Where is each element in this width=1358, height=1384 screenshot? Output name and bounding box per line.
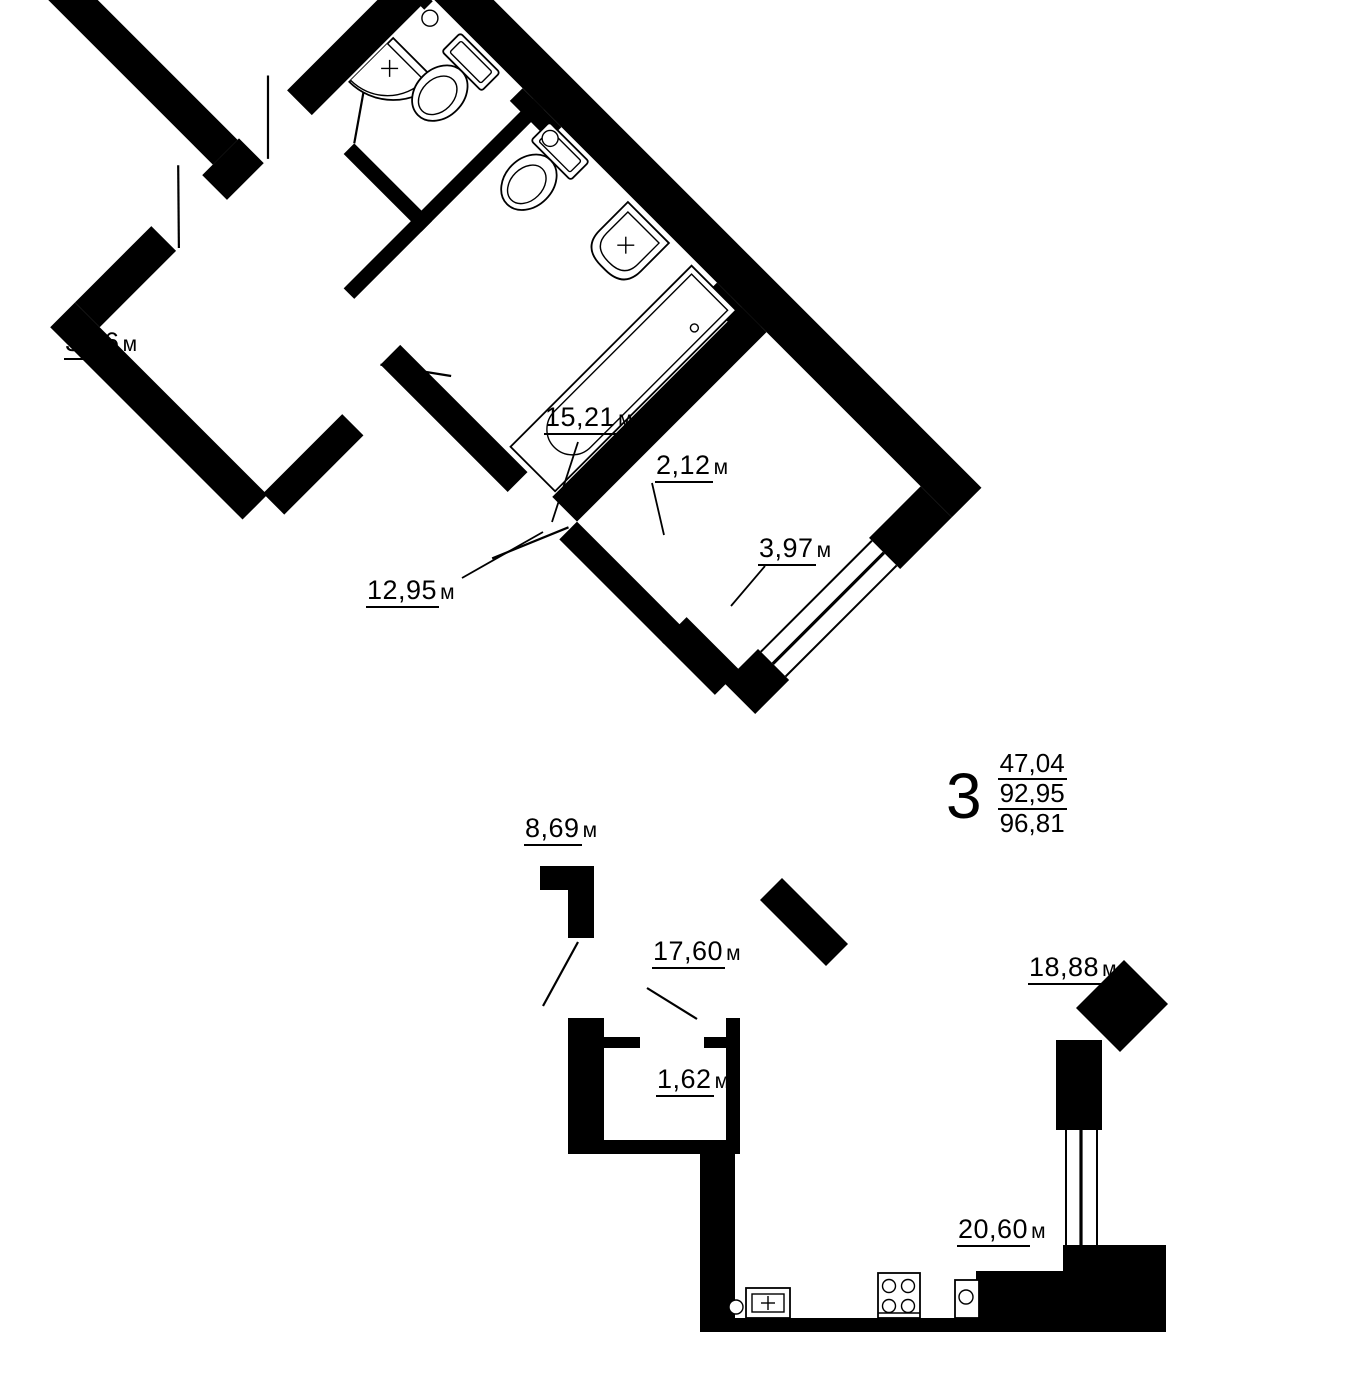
- living-area: 47,04: [998, 750, 1067, 780]
- wall-kitchen-corner: [1063, 1245, 1166, 1275]
- walls-group: [0, 0, 981, 885]
- wall-living-bottom: [559, 522, 681, 644]
- wall-kitchen-right-top: [1056, 1040, 1102, 1130]
- window-living-room: [786, 566, 897, 677]
- area-stack: 47,04 92,95 96,81: [998, 750, 1067, 838]
- room-label-hallway: 8,69м: [524, 813, 598, 844]
- pipe-icon: [419, 7, 442, 30]
- stove-icon: [878, 1273, 920, 1318]
- rooms-count: 3: [946, 764, 982, 828]
- room-label-bedroom-2: 12,95м: [366, 575, 455, 606]
- kitchen-fixtures-group: [729, 1273, 979, 1318]
- room-label-storage: 1,62м: [656, 1064, 730, 1095]
- windows-group: [1066, 1128, 1097, 1245]
- room-label-corridor: 17,60м: [652, 936, 741, 967]
- wall-storage-top: [704, 1037, 726, 1048]
- total-area: 96,81: [998, 810, 1067, 838]
- room-label-living-room: 18,88м: [1028, 952, 1117, 983]
- wall-storage-left: [568, 1018, 604, 1154]
- room-label-bathroom: 3,97м: [758, 533, 832, 564]
- oven-icon: [955, 1280, 979, 1318]
- door-storage-leaf: [647, 988, 697, 1019]
- wall-storage-top: [604, 1037, 640, 1048]
- wall-entry-pier: [568, 866, 594, 938]
- room-label-balcony: 3,86м: [64, 327, 138, 358]
- floor-plan-drawing: [0, 0, 1358, 1384]
- leader-bedroom-2: [462, 532, 543, 578]
- walls-group: [540, 866, 1168, 1332]
- door-entry-leaf: [543, 942, 578, 1006]
- window-living-room: [773, 553, 884, 664]
- kitchen-sink-icon: [729, 1288, 790, 1318]
- wall-kitchen-entry-stub: [760, 878, 848, 966]
- room-label-kitchen: 20,60м: [957, 1214, 1046, 1245]
- wall-bath-bottom: [380, 345, 527, 492]
- rotated-section: [0, 0, 981, 885]
- orthogonal-section: [540, 866, 1168, 1332]
- floor-plan: 3,86м 15,21м 2,12м 3,97м 12,95м 8,69м 17…: [0, 0, 1358, 1384]
- wall-kitchen-corner: [976, 1271, 1166, 1332]
- room-label-wc: 2,12м: [655, 450, 729, 481]
- room-label-bedroom-1: 15,21м: [544, 402, 633, 433]
- wall-hall-corridor: [263, 414, 363, 514]
- apartment-area: 92,95: [998, 780, 1067, 810]
- wall-bedroom-divider: [0, 0, 238, 165]
- wall-storage-bottom: [568, 1140, 740, 1154]
- unit-summary: 3 47,04 92,95 96,81: [946, 750, 1067, 838]
- wall-bedrooms-right: [75, 226, 176, 327]
- leader-wc: [652, 483, 664, 535]
- leader-bathroom: [731, 566, 765, 606]
- door-living-leaf: [492, 505, 568, 581]
